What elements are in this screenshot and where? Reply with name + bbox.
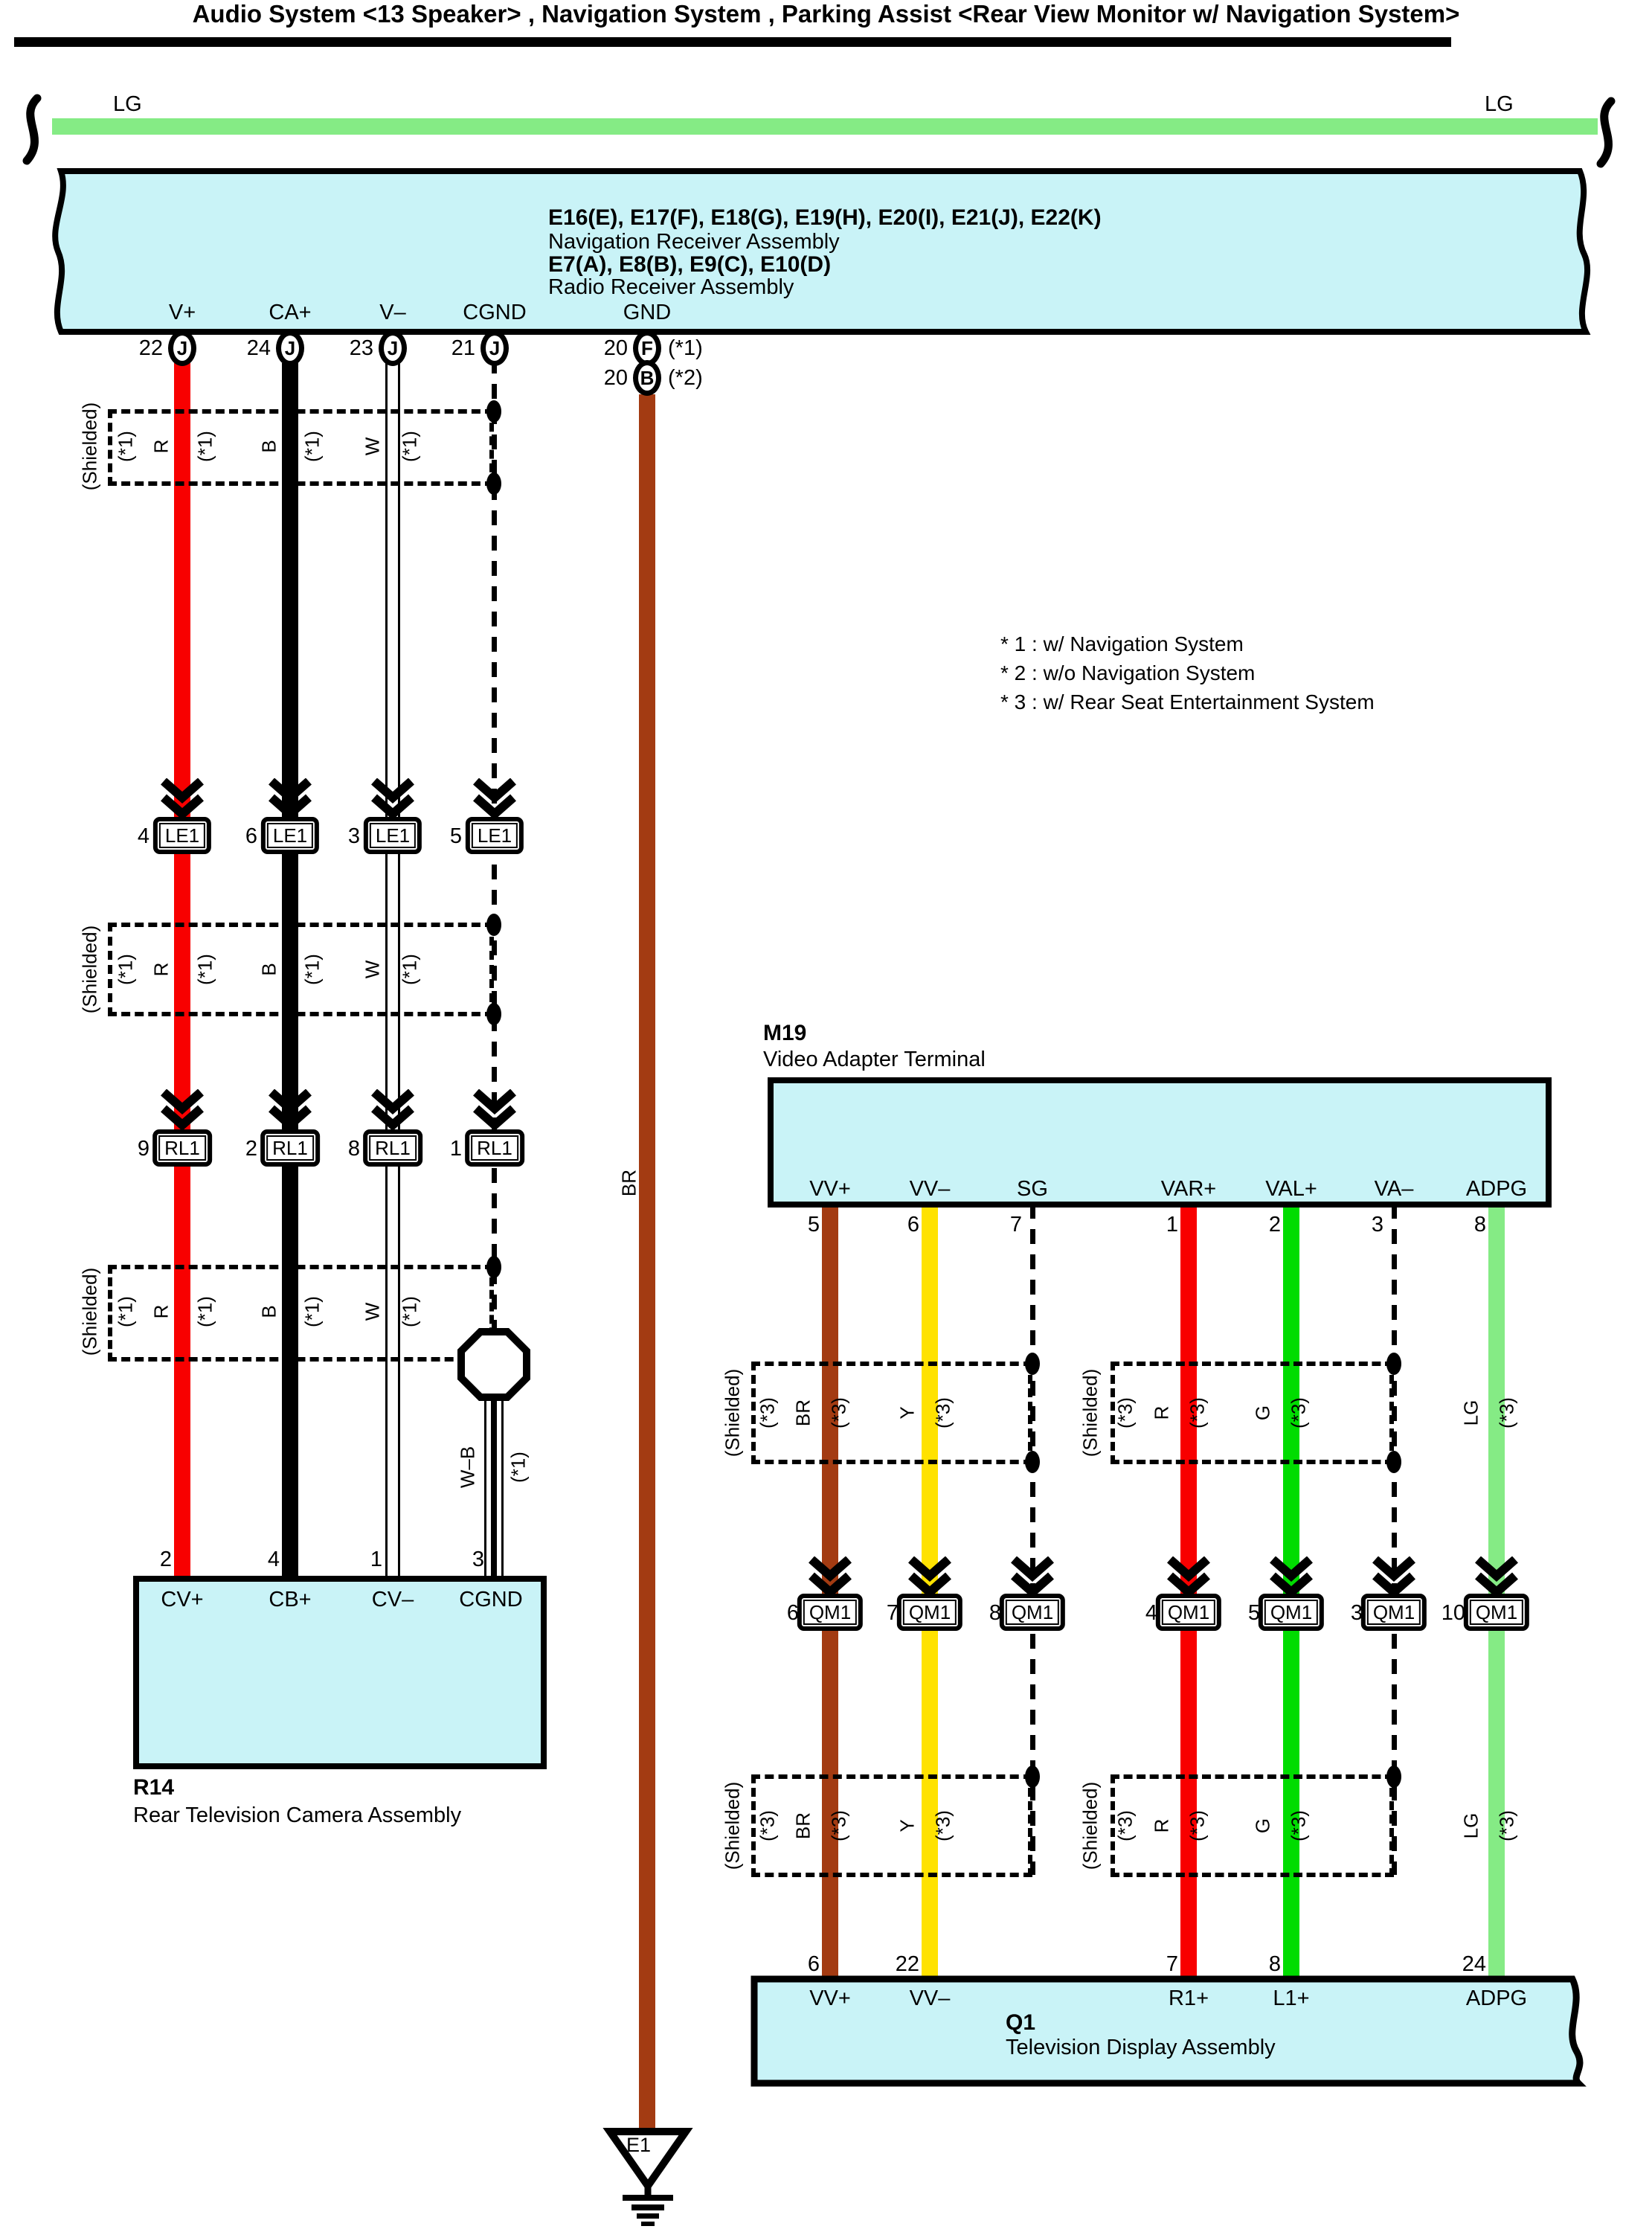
wire-break-right-icon bbox=[1589, 97, 1622, 168]
wire-note: (*1) bbox=[301, 431, 324, 462]
wire-note: (*3) bbox=[932, 1810, 955, 1841]
wire-color-code-br: BR bbox=[792, 1812, 815, 1839]
component-pin-number: 8 bbox=[1269, 1952, 1281, 1977]
shield-note: (*3) bbox=[756, 1810, 780, 1841]
receiver-box-line4: Radio Receiver Assembly bbox=[548, 275, 794, 300]
wire-note: (*3) bbox=[828, 1397, 851, 1428]
component-pin-number: 24 bbox=[1462, 1952, 1486, 1977]
wire-note: (*1) bbox=[507, 1452, 530, 1483]
wire-color-code-r: R bbox=[1151, 1819, 1174, 1833]
wire-note: (*3) bbox=[1288, 1397, 1311, 1428]
connector-rl1: RL1 bbox=[152, 1129, 212, 1167]
arrow-down-icon bbox=[1370, 1556, 1418, 1597]
wire-color-code-wb: W–B bbox=[457, 1446, 480, 1488]
wire-color-code-b: B bbox=[258, 440, 281, 452]
pin-label-caplus: CA+ bbox=[269, 301, 311, 325]
lg-wire-label-left: LG bbox=[113, 92, 142, 117]
wire-color-code-y: Y bbox=[896, 1406, 919, 1419]
pin-note: (*2) bbox=[668, 366, 703, 391]
pin-number: 23 bbox=[350, 336, 373, 361]
connector-pin-number: 1 bbox=[450, 1137, 462, 1161]
connector-pin-number: 9 bbox=[138, 1137, 150, 1161]
connector-qm1: QM1 bbox=[897, 1594, 962, 1631]
wire-wb-cgnd bbox=[484, 1396, 504, 1576]
lg-harness-wire bbox=[52, 118, 1598, 135]
ground-bar bbox=[631, 2204, 664, 2210]
arrow-down-icon bbox=[1165, 1556, 1212, 1597]
shielded-label: (Shielded) bbox=[79, 926, 102, 1014]
connector-rl1: RL1 bbox=[465, 1129, 524, 1167]
arrow-down-icon bbox=[806, 1556, 854, 1597]
component-pin-number: 3 bbox=[1372, 1213, 1383, 1237]
wire-note: (*3) bbox=[1288, 1810, 1311, 1841]
q1-pin-label: ADPG bbox=[1466, 1986, 1527, 2011]
arrow-down-icon bbox=[1009, 1556, 1056, 1597]
connector-rl1: RL1 bbox=[260, 1129, 320, 1167]
lg-wire-label-right: LG bbox=[1485, 92, 1514, 117]
component-pin-number: 6 bbox=[808, 1952, 820, 1977]
wire-note: (*1) bbox=[301, 1296, 324, 1327]
connector-rl1: RL1 bbox=[363, 1129, 422, 1167]
m19-pin-label: VV+ bbox=[809, 1177, 851, 1202]
r14-pin-label: CV– bbox=[372, 1588, 414, 1612]
pin-number: 20 bbox=[604, 336, 628, 361]
connector-qm1: QM1 bbox=[1156, 1594, 1221, 1631]
wire-color-code-y: Y bbox=[896, 1819, 919, 1832]
junction-dot bbox=[486, 400, 501, 423]
m19-code: M19 bbox=[763, 1021, 806, 1046]
wire-color-code-b: B bbox=[258, 1305, 281, 1318]
component-pin-number: 7 bbox=[1166, 1952, 1178, 1977]
connector-qm1: QM1 bbox=[1259, 1594, 1324, 1631]
receiver-box-line3: E7(A), E8(B), E9(C), E10(D) bbox=[548, 252, 831, 278]
arrow-down-icon bbox=[158, 1089, 206, 1129]
wire-color-code-lg: LG bbox=[1460, 1400, 1483, 1426]
connector-qm1: QM1 bbox=[1000, 1594, 1065, 1631]
connector-le1: LE1 bbox=[261, 817, 319, 854]
shielded-label: (Shielded) bbox=[79, 1268, 102, 1356]
q1-name: Television Display Assembly bbox=[1006, 2036, 1276, 2060]
footnote-3: * 3 : w/ Rear Seat Entertainment System bbox=[1000, 690, 1375, 714]
component-pin-number: 5 bbox=[808, 1213, 820, 1237]
wire-note: (*1) bbox=[399, 1296, 422, 1327]
wire-note: (*3) bbox=[1186, 1810, 1209, 1841]
pin-label-cgnd: CGND bbox=[463, 301, 526, 325]
arrow-down-icon bbox=[369, 1089, 417, 1129]
pin-label-gnd: GND bbox=[623, 301, 671, 325]
wire-note: (*1) bbox=[194, 431, 217, 462]
connector-le1: LE1 bbox=[466, 817, 524, 854]
shield-note: (*1) bbox=[115, 1296, 138, 1327]
component-pin-number: 1 bbox=[1166, 1213, 1178, 1237]
ground-bar bbox=[637, 2213, 659, 2219]
connector-pin-number: 6 bbox=[245, 824, 257, 849]
junction-dot bbox=[1386, 1451, 1401, 1473]
m19-name: Video Adapter Terminal bbox=[763, 1048, 986, 1072]
m19-pin-label: VAR+ bbox=[1161, 1177, 1216, 1202]
component-pin-number: 22 bbox=[896, 1952, 919, 1977]
wire-note: (*3) bbox=[1186, 1397, 1209, 1428]
wire-note: (*3) bbox=[1496, 1810, 1519, 1841]
arrow-down-icon bbox=[158, 778, 206, 818]
shield-note: (*3) bbox=[1114, 1397, 1137, 1428]
wire-note: (*1) bbox=[194, 954, 217, 985]
component-pin-number: 7 bbox=[1010, 1213, 1022, 1237]
m19-pin-label: SG bbox=[1017, 1177, 1048, 1202]
component-pin-number: 3 bbox=[472, 1548, 484, 1572]
pin-note: (*1) bbox=[668, 336, 703, 361]
shield-note: (*3) bbox=[756, 1397, 780, 1428]
component-pin-number: 6 bbox=[907, 1213, 919, 1237]
footnote-2: * 2 : w/o Navigation System bbox=[1000, 661, 1255, 685]
shielded-label: (Shielded) bbox=[1079, 1782, 1102, 1870]
wire-color-code-g: G bbox=[1252, 1405, 1275, 1420]
junction-dot bbox=[1386, 1766, 1401, 1788]
connector-pin-number: 5 bbox=[450, 824, 462, 849]
r14-name: Rear Television Camera Assembly bbox=[133, 1803, 461, 1828]
wire-color-code-br: BR bbox=[618, 1170, 641, 1196]
q1-code: Q1 bbox=[1006, 2010, 1035, 2036]
shield-note: (*3) bbox=[1114, 1810, 1137, 1841]
wire-note: (*1) bbox=[399, 954, 422, 985]
q1-pin-label: R1+ bbox=[1169, 1986, 1209, 2011]
junction-dot bbox=[486, 1256, 501, 1278]
shield-note: (*1) bbox=[115, 954, 138, 985]
m19-pin-label: VAL+ bbox=[1265, 1177, 1317, 1202]
junction-dot bbox=[486, 472, 501, 495]
connector-pin-number: 4 bbox=[1145, 1601, 1157, 1626]
arrow-down-icon bbox=[471, 1089, 518, 1129]
arrow-down-icon bbox=[906, 1556, 954, 1597]
wire-note: (*3) bbox=[1496, 1397, 1519, 1428]
receiver-box-line1: E16(E), E17(F), E18(G), E19(H), E20(I), … bbox=[548, 205, 1102, 231]
component-pin-number: 2 bbox=[1269, 1213, 1281, 1237]
r14-pin-label: CB+ bbox=[269, 1588, 311, 1612]
e1-label: E1 bbox=[626, 2134, 651, 2157]
junction-dot bbox=[486, 914, 501, 936]
q1-pin-label: VV+ bbox=[809, 1986, 851, 2011]
shielded-label: (Shielded) bbox=[79, 403, 102, 491]
wire-color-code-r: R bbox=[150, 963, 173, 977]
pin-number: 20 bbox=[604, 366, 628, 391]
q1-pin-label: L1+ bbox=[1273, 1986, 1309, 2011]
arrow-down-icon bbox=[266, 778, 314, 818]
pin-number: 24 bbox=[247, 336, 271, 361]
wire-color-code-b: B bbox=[258, 963, 281, 975]
connector-pin-number: 6 bbox=[787, 1601, 799, 1626]
pin-connector-circle: J bbox=[168, 330, 196, 366]
page-title: Audio System <13 Speaker> , Navigation S… bbox=[0, 0, 1652, 28]
pin-number: 21 bbox=[451, 336, 475, 361]
noise-filter-octagon-icon bbox=[457, 1327, 531, 1402]
wire-color-code-w: W bbox=[361, 961, 385, 979]
r14-pin-label: CV+ bbox=[161, 1588, 203, 1612]
wire-break-left-icon bbox=[15, 94, 48, 165]
wire-brown-gnd bbox=[639, 394, 655, 2132]
arrow-down-icon bbox=[471, 778, 518, 818]
connector-pin-number: 10 bbox=[1442, 1601, 1465, 1626]
pin-connector-circle: J bbox=[379, 330, 407, 366]
wire-color-code-w: W bbox=[361, 437, 385, 456]
connector-le1: LE1 bbox=[364, 817, 422, 854]
component-pin-number: 8 bbox=[1474, 1213, 1486, 1237]
arrow-down-icon bbox=[1473, 1556, 1520, 1597]
m19-pin-label: VA– bbox=[1375, 1177, 1414, 1202]
arrow-down-icon bbox=[1267, 1556, 1315, 1597]
connector-pin-number: 8 bbox=[348, 1137, 360, 1161]
pin-connector-circle: J bbox=[276, 330, 304, 366]
title-underline bbox=[14, 37, 1451, 47]
connector-pin-number: 2 bbox=[245, 1137, 257, 1161]
wire-note: (*1) bbox=[399, 431, 422, 462]
junction-dot bbox=[1025, 1766, 1040, 1788]
shielded-label: (Shielded) bbox=[721, 1782, 745, 1870]
wire-color-code-w: W bbox=[361, 1303, 385, 1321]
wire-note: (*3) bbox=[932, 1397, 955, 1428]
connector-pin-number: 8 bbox=[989, 1601, 1001, 1626]
wire-color-code-br: BR bbox=[792, 1399, 815, 1426]
connector-le1: LE1 bbox=[153, 817, 211, 854]
connector-qm1: QM1 bbox=[1361, 1594, 1427, 1631]
connector-qm1: QM1 bbox=[1464, 1594, 1529, 1631]
arrow-down-icon bbox=[369, 778, 417, 818]
wire-note: (*1) bbox=[194, 1296, 217, 1327]
arrow-down-icon bbox=[266, 1089, 314, 1129]
connector-pin-number: 3 bbox=[1351, 1601, 1363, 1626]
receiver-box-line2: Navigation Receiver Assembly bbox=[548, 230, 840, 254]
shielded-label: (Shielded) bbox=[1079, 1369, 1102, 1457]
wire-note: (*1) bbox=[301, 954, 324, 985]
ground-bar bbox=[623, 2195, 673, 2201]
junction-dot bbox=[486, 1003, 501, 1025]
pin-number: 22 bbox=[139, 336, 163, 361]
m19-pin-label: VV– bbox=[910, 1177, 951, 1202]
shield-note: (*1) bbox=[115, 431, 138, 462]
wire-color-code-r: R bbox=[150, 1305, 173, 1319]
wire-color-code-lg: LG bbox=[1460, 1813, 1483, 1839]
junction-dot bbox=[1025, 1353, 1040, 1375]
junction-dot bbox=[1025, 1451, 1040, 1473]
q1-pin-label: VV– bbox=[910, 1986, 951, 2011]
connector-pin-number: 5 bbox=[1248, 1601, 1260, 1626]
connector-pin-number: 4 bbox=[138, 824, 150, 849]
pin-label-vminus: V– bbox=[379, 301, 405, 325]
wire-note: (*3) bbox=[828, 1810, 851, 1841]
wire-color-code-g: G bbox=[1252, 1818, 1275, 1833]
wiring-diagram: Audio System <13 Speaker> , Navigation S… bbox=[0, 0, 1652, 2232]
ground-bar bbox=[641, 2222, 655, 2226]
connector-qm1: QM1 bbox=[797, 1594, 863, 1631]
wire-color-code-r: R bbox=[150, 440, 173, 454]
pin-connector-circle: J bbox=[481, 330, 509, 366]
pin-label-vplus: V+ bbox=[169, 301, 196, 325]
connector-pin-number: 7 bbox=[887, 1601, 899, 1626]
m19-pin-label: ADPG bbox=[1466, 1177, 1527, 1202]
footnote-1: * 1 : w/ Navigation System bbox=[1000, 632, 1244, 656]
m19-box bbox=[768, 1077, 1552, 1208]
component-pin-number: 4 bbox=[268, 1548, 280, 1572]
component-pin-number: 2 bbox=[160, 1548, 172, 1572]
junction-dot bbox=[1386, 1353, 1401, 1375]
connector-pin-number: 3 bbox=[348, 824, 360, 849]
wire-color-code-r: R bbox=[1151, 1406, 1174, 1420]
r14-pin-label: CGND bbox=[459, 1588, 522, 1612]
component-pin-number: 1 bbox=[370, 1548, 382, 1572]
shielded-label: (Shielded) bbox=[721, 1369, 745, 1457]
pin-connector-circle: B bbox=[633, 360, 661, 396]
r14-code: R14 bbox=[133, 1775, 174, 1800]
